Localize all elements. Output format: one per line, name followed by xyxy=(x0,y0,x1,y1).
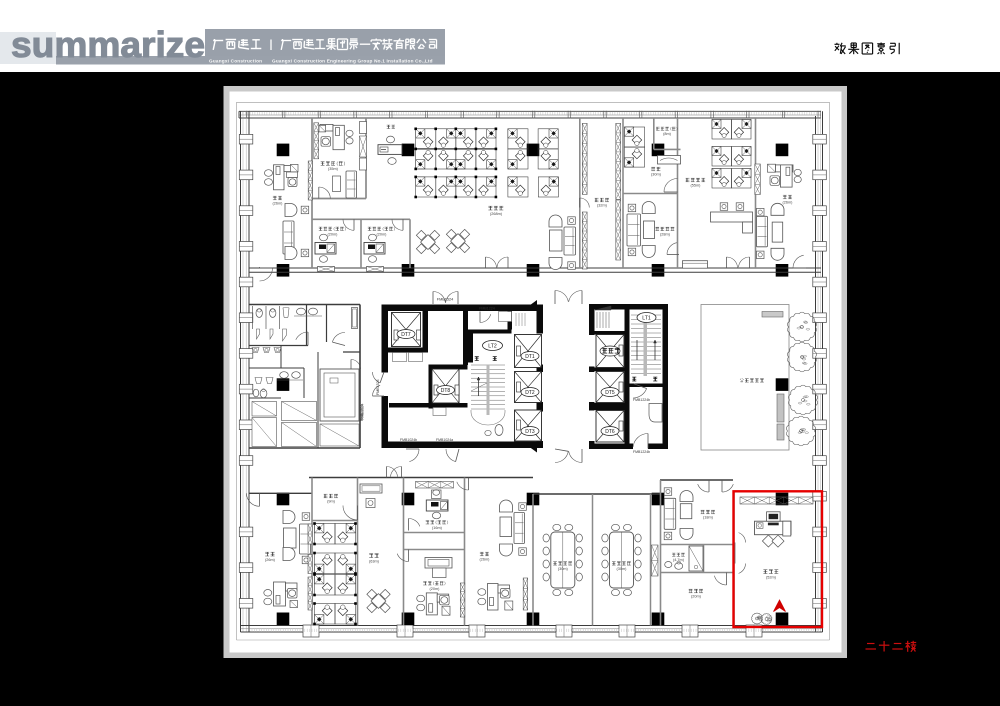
svg-text:(30m): (30m) xyxy=(558,567,569,571)
svg-text:(30m): (30m) xyxy=(617,567,628,571)
svg-text:(8m): (8m) xyxy=(663,132,672,136)
svg-text:DT5: DT5 xyxy=(605,390,615,396)
svg-text:LT2: LT2 xyxy=(488,344,497,350)
svg-text:Guangxi Construction: Guangxi Construction xyxy=(209,59,262,64)
svg-text:FMB1024b: FMB1024b xyxy=(400,438,417,442)
svg-text:Guangxi Construction Engineeri: Guangxi Construction Engineering Group N… xyxy=(272,59,433,64)
svg-text:DT2: DT2 xyxy=(525,390,535,396)
svg-text:(20m): (20m) xyxy=(328,232,339,236)
svg-text:(4.7m): (4.7m) xyxy=(673,558,685,562)
svg-text:DT7: DT7 xyxy=(401,332,411,338)
svg-text:summarize: summarize xyxy=(11,24,205,65)
svg-text:DT3: DT3 xyxy=(525,429,535,435)
svg-text:(20m): (20m) xyxy=(691,595,702,599)
svg-text:FMB1524: FMB1524 xyxy=(361,404,365,420)
svg-text:FMB1024a: FMB1024a xyxy=(436,438,453,442)
svg-text:(28m): (28m) xyxy=(660,233,671,237)
svg-text:FMB1224b: FMB1224b xyxy=(633,450,650,454)
svg-text:(26m): (26m) xyxy=(480,558,491,562)
svg-text:(32m): (32m) xyxy=(597,204,608,208)
svg-text:(20m): (20m) xyxy=(430,587,441,591)
svg-text:(55m): (55m) xyxy=(691,184,702,188)
svg-text:(26m): (26m) xyxy=(783,201,794,205)
svg-text:(16m): (16m) xyxy=(432,526,443,530)
svg-text:(9m): (9m) xyxy=(327,500,336,504)
svg-text:(35m): (35m) xyxy=(328,167,339,171)
svg-text:(20m): (20m) xyxy=(377,232,388,236)
svg-text:FMB1524: FMB1524 xyxy=(376,379,380,395)
svg-text:(18m): (18m) xyxy=(703,516,714,520)
svg-text:DT1: DT1 xyxy=(525,354,535,360)
svg-text:(52m): (52m) xyxy=(766,575,777,579)
svg-text:(63m): (63m) xyxy=(369,559,380,563)
svg-text:DT6: DT6 xyxy=(605,429,615,435)
svg-text:FMB1224b: FMB1224b xyxy=(633,398,650,402)
svg-text:LT1: LT1 xyxy=(642,316,651,322)
svg-text:(268m): (268m) xyxy=(490,212,503,216)
svg-text:FMB1524: FMB1524 xyxy=(437,298,453,302)
svg-text:(30m): (30m) xyxy=(651,173,662,177)
svg-text:(26m): (26m) xyxy=(265,558,276,562)
svg-text:(26m): (26m) xyxy=(273,202,284,206)
svg-text:DT8: DT8 xyxy=(441,388,451,394)
svg-text:FMB1224: FMB1224 xyxy=(479,307,495,311)
